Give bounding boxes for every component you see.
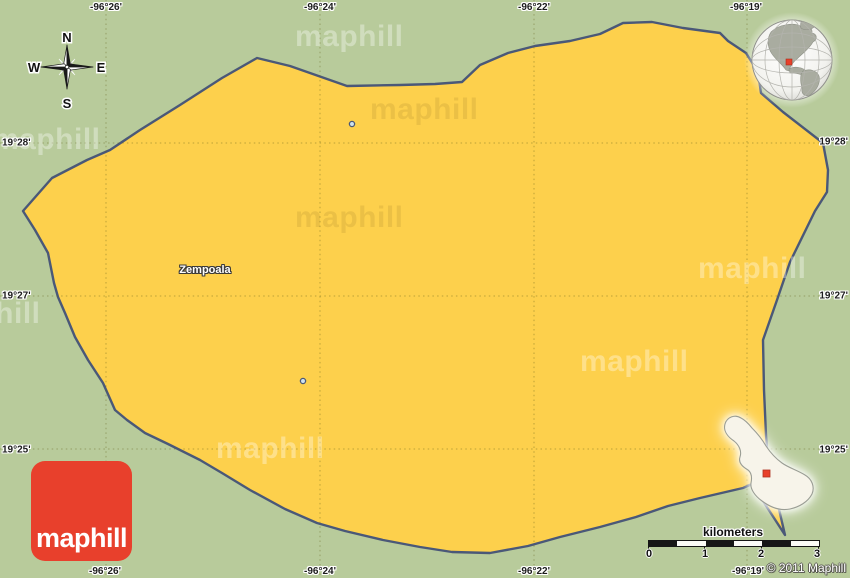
compass-east-label: E bbox=[97, 60, 106, 75]
maphill-logo-text: maphill bbox=[36, 525, 127, 561]
maphill-watermark: maphill bbox=[295, 201, 404, 235]
maphill-watermark: maphill bbox=[580, 345, 689, 379]
lat-label-right: 19°27' bbox=[819, 291, 848, 302]
compass-west-label: W bbox=[28, 60, 41, 75]
lat-label-right: 19°25' bbox=[819, 445, 848, 456]
lon-label-top: -96°22' bbox=[518, 2, 550, 13]
lon-label-top: -96°24' bbox=[304, 2, 336, 13]
maphill-watermark: maphill bbox=[295, 20, 404, 54]
copyright-text: © 2011 Maphill bbox=[767, 561, 846, 575]
pond-markers bbox=[300, 121, 354, 383]
scalebar bbox=[648, 540, 820, 547]
compass-north-label: N bbox=[62, 30, 71, 45]
lat-label-right: 19°28' bbox=[819, 137, 848, 148]
maphill-watermark: maphill bbox=[0, 297, 41, 331]
compass-south-label: S bbox=[63, 96, 72, 111]
lat-label-left: 19°28' bbox=[2, 138, 31, 149]
globe-locator-icon bbox=[743, 11, 841, 109]
lon-label-bottom: -96°19' bbox=[732, 566, 764, 577]
maphill-logo[interactable]: maphill bbox=[31, 461, 132, 561]
lat-label-left: 19°27' bbox=[2, 291, 31, 302]
lon-label-bottom: -96°24' bbox=[304, 566, 336, 577]
lon-label-bottom: -96°26' bbox=[89, 566, 121, 577]
map-canvas: maphill maphill maphill maphill maphill … bbox=[0, 0, 850, 578]
compass-rose-icon: N W E S bbox=[20, 24, 116, 112]
maphill-watermark: maphill bbox=[698, 252, 807, 286]
lat-label-left: 19°25' bbox=[2, 445, 31, 456]
globe-location-marker-icon bbox=[786, 59, 792, 65]
scalebar-tick-label: 1 bbox=[702, 548, 708, 560]
lon-label-top: -96°26' bbox=[90, 2, 122, 13]
scalebar-tick-label: 2 bbox=[758, 548, 764, 560]
scalebar-tick-label: 0 bbox=[646, 548, 652, 560]
scalebar-units-label: kilometers bbox=[703, 525, 763, 539]
scalebar-tick-label: 3 bbox=[814, 548, 820, 560]
lon-label-bottom: -96°22' bbox=[518, 566, 550, 577]
place-label-zempoala: Zempoala bbox=[179, 264, 230, 276]
maphill-watermark: maphill bbox=[216, 432, 325, 466]
maphill-watermark: maphill bbox=[370, 93, 479, 127]
inset-location-marker-icon bbox=[763, 470, 770, 477]
